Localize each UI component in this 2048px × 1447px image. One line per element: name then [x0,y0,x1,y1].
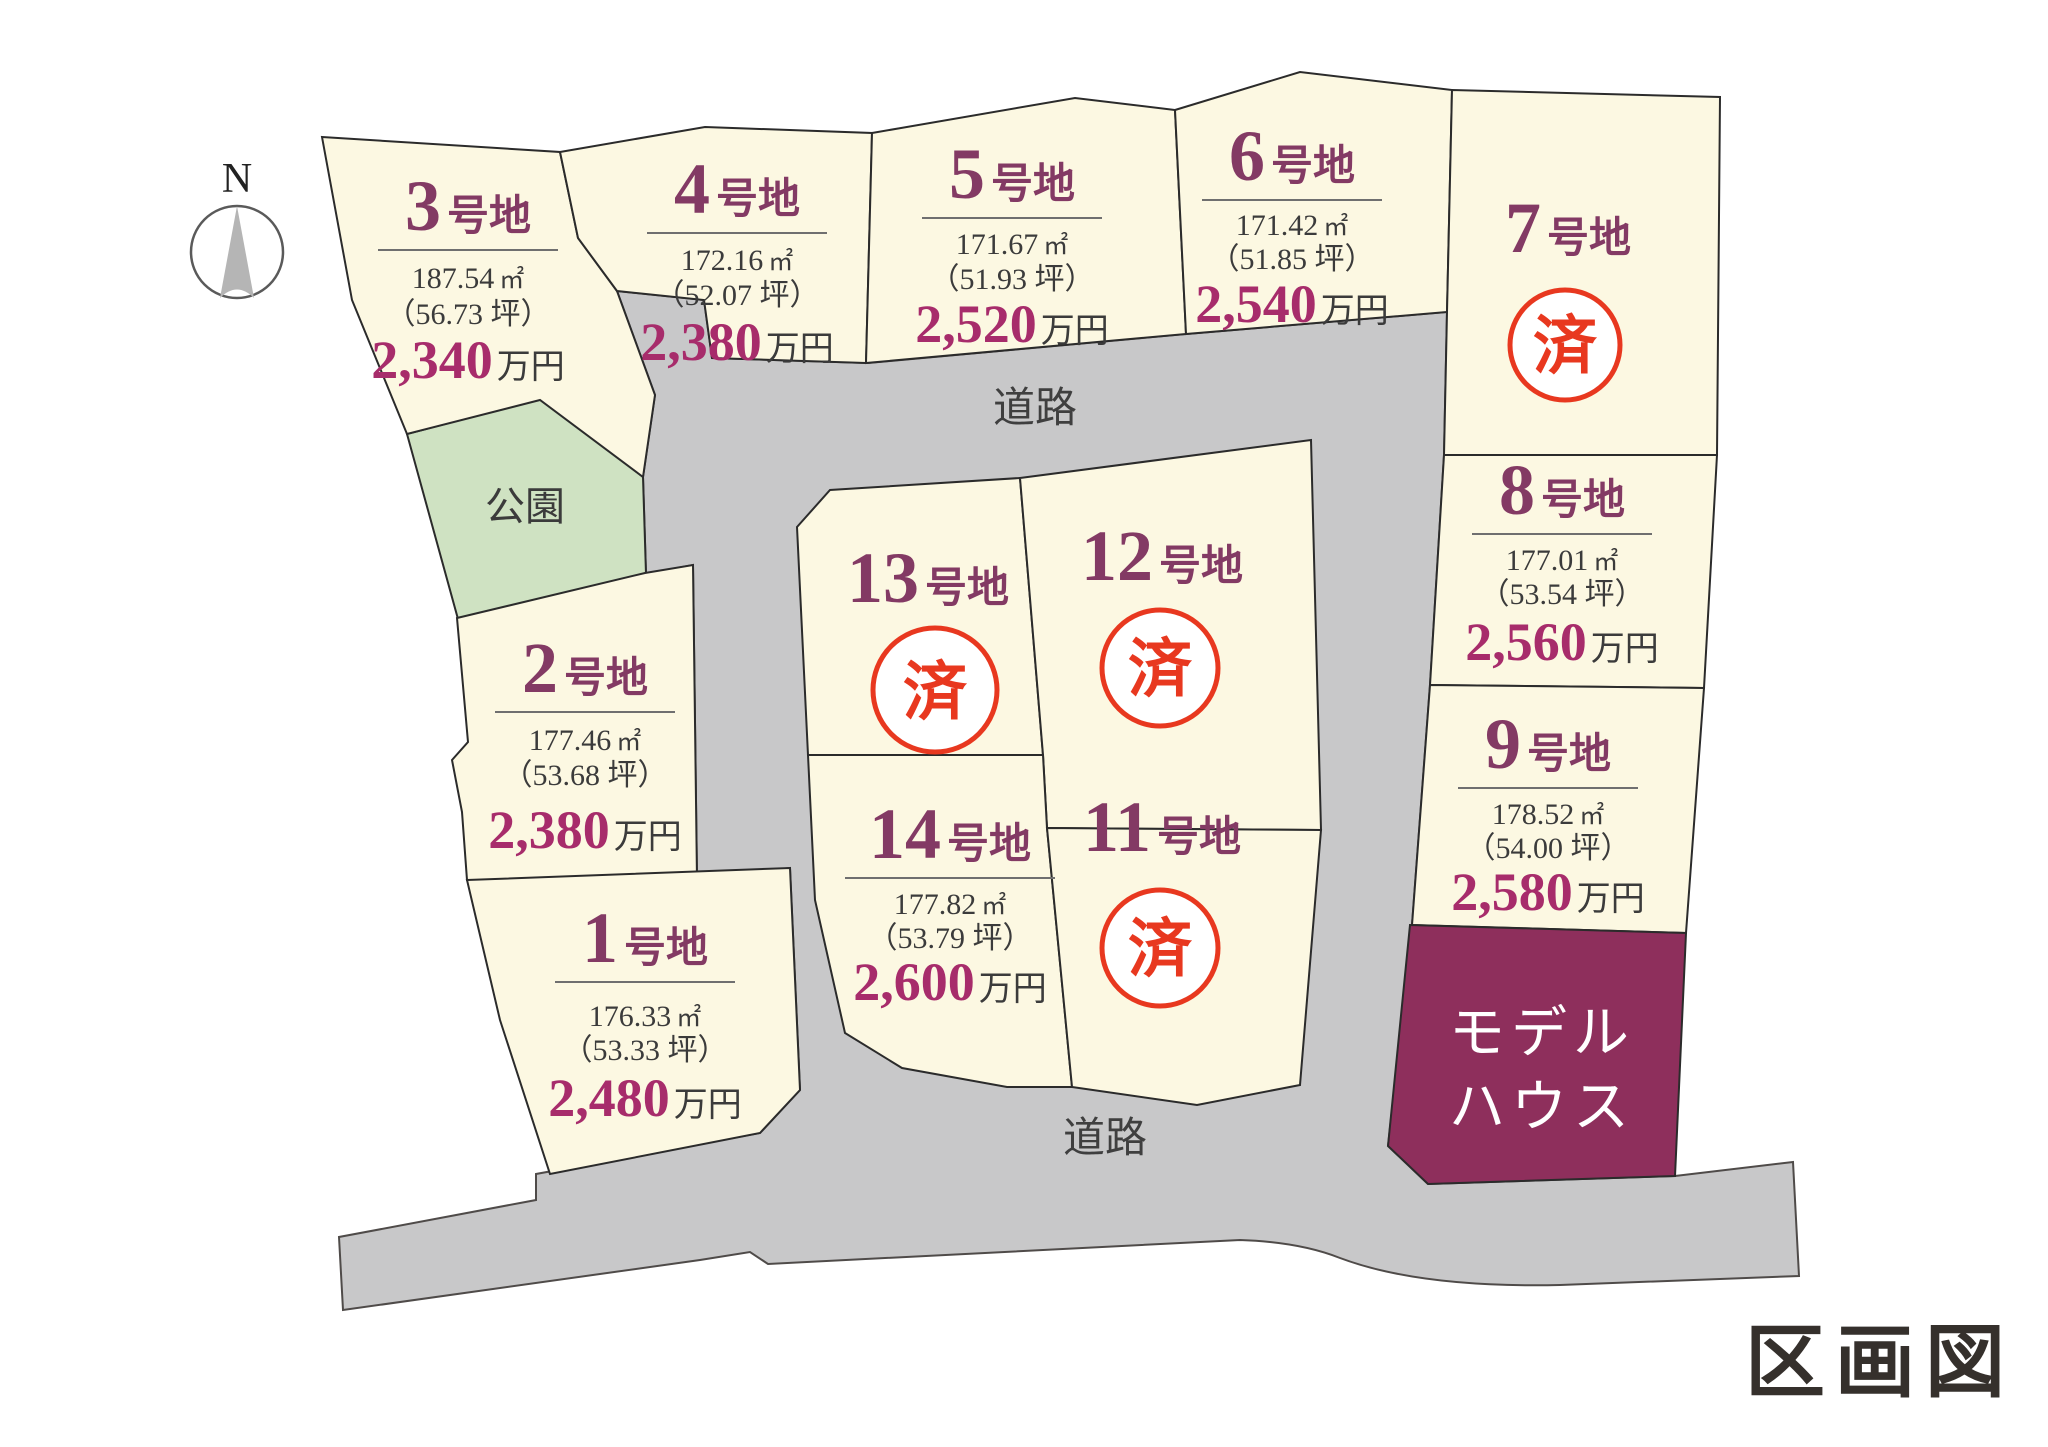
lot-14-tsubo: （53.79 坪） [868,922,1033,955]
lot-12-sold-label: 済 [1128,634,1193,705]
road-label-bottom: 道路 [1063,1116,1147,1162]
lot-6-area: 171.42㎡ [1236,209,1349,242]
lot-5-area: 171.67㎡ [956,228,1069,261]
lot-13-sold-badge: 済 [873,628,997,752]
lot-5-tsubo: （51.93 坪） [930,263,1095,296]
lot-8-tsubo: （53.54 坪） [1480,578,1645,611]
compass-needle-icon [220,206,254,298]
lot-2-area: 177.46㎡ [529,724,642,757]
model-house-label-line2: ハウス [1449,1077,1635,1139]
lot-7-parcel [1444,90,1720,455]
lot-1-area: 176.33㎡ [589,1000,702,1033]
lot-6-tsubo: （51.85 坪） [1210,243,1375,276]
lot-9-tsubo: （54.00 坪） [1466,832,1631,865]
lot-2-tsubo: （53.68 坪） [503,759,668,792]
park-label: 公園 [485,484,565,529]
lot-9-area: 178.52㎡ [1492,798,1605,831]
lot-1-tsubo: （53.33 坪） [563,1034,728,1067]
road-label-top: 道路 [993,386,1077,432]
lot-3-tsubo: （56.73 坪） [386,298,551,331]
lot-3-area: 187.54㎡ [412,262,525,295]
compass: N [191,156,283,298]
lot-8-area: 177.01㎡ [1506,544,1619,577]
lot-11-sold-label: 済 [1128,914,1193,985]
lot-map: 3号地 187.54㎡ （56.73 坪） 2,340万円 4号地 172.16… [0,0,2048,1447]
lot-4-tsubo: （52.07 坪） [655,279,820,312]
lot-4-area: 172.16㎡ [681,244,794,277]
lot-7-sold-badge: 済 [1510,290,1620,400]
lot-13-sold-label: 済 [903,657,968,728]
lot-12-sold-badge: 済 [1102,610,1218,726]
compass-north-label: N [222,156,252,202]
lot-14-area: 177.82㎡ [894,888,1007,921]
lot-11-sold-badge: 済 [1102,890,1218,1006]
model-house-label-line1: モデル [1449,1003,1635,1065]
lot-7-sold-label: 済 [1533,311,1598,382]
page-title: 区画図 [1745,1320,2015,1408]
